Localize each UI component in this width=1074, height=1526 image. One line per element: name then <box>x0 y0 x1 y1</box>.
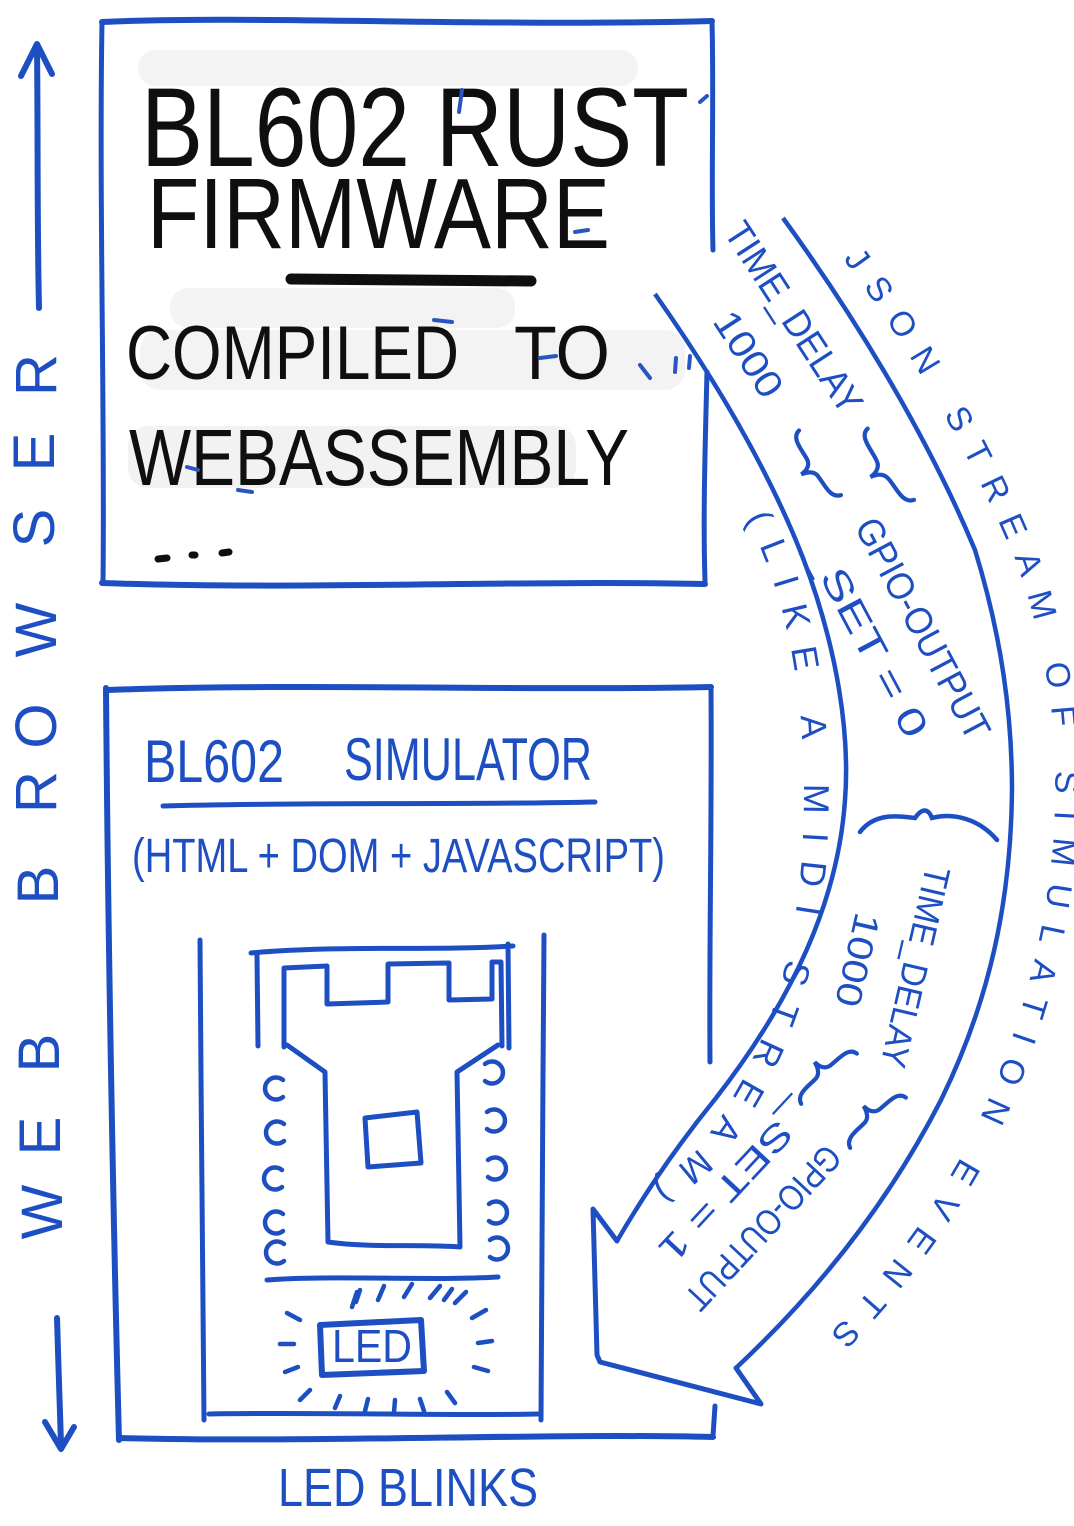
svg-text:LED: LED <box>332 1320 412 1372</box>
svg-text:B: B <box>6 866 71 905</box>
svg-text:SIMULATOR: SIMULATOR <box>344 726 592 793</box>
svg-text:S: S <box>2 509 67 548</box>
svg-text:TO: TO <box>514 311 610 396</box>
svg-text:B: B <box>7 1034 72 1073</box>
svg-text:R: R <box>4 771 69 813</box>
svg-text:O: O <box>4 703 69 748</box>
svg-text:R: R <box>4 354 69 396</box>
svg-text:FIRMWARE: FIRMWARE <box>147 158 610 270</box>
svg-text:W: W <box>4 602 69 657</box>
svg-text:LED BLINKS: LED BLINKS <box>278 1458 538 1518</box>
svg-text:(HTML + DOM + JAVASCRIPT): (HTML + DOM + JAVASCRIPT) <box>132 830 665 883</box>
svg-text:COMPILED: COMPILED <box>126 311 459 396</box>
svg-text:BL602: BL602 <box>144 728 284 795</box>
svg-text:E: E <box>8 1117 73 1156</box>
svg-text:E: E <box>2 433 67 472</box>
svg-text:W: W <box>10 1184 75 1239</box>
svg-text:WEBASSEMBLY: WEBASSEMBLY <box>129 413 629 502</box>
